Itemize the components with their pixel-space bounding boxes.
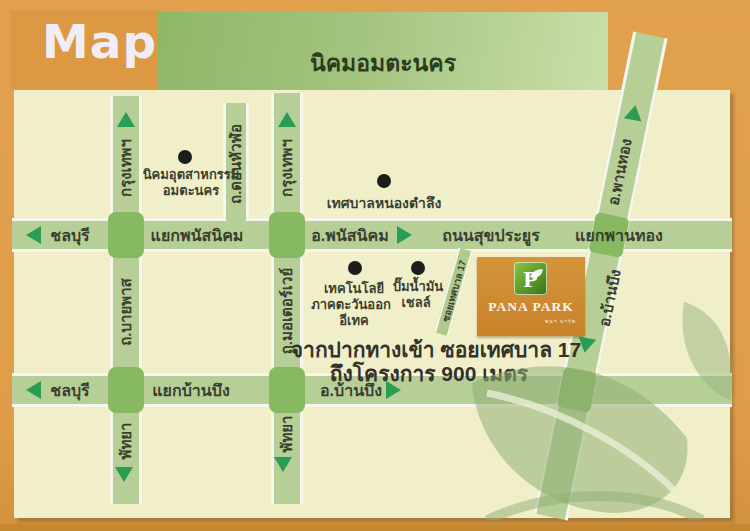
label-dir-phanatnikhom: อ.พนัสนิคม [311, 223, 389, 248]
arrow-left-icon [26, 381, 41, 399]
label-chonburi-west-1: ชลบุรี [50, 223, 89, 248]
arrow-up-icon [117, 112, 135, 127]
crossing-bypass-sukprayoon [108, 212, 144, 258]
frame-bottom-edge [0, 524, 750, 531]
arrow-right-icon [397, 226, 412, 244]
label-pattaya-1: พัทยา [114, 423, 138, 460]
label-bypass: ถ.บายพาส [114, 278, 138, 345]
arrow-down-icon [115, 467, 133, 482]
arrow-up-icon [278, 112, 296, 127]
arrow-left-icon [26, 226, 41, 244]
screenshot-root: { "header": { "map_label": "Map", "banne… [0, 0, 750, 531]
map-panel: ชลบุรี แยกพนัสนิคม อ.พนัสนิคม ถนนสุขประย… [14, 90, 730, 518]
label-junction-phanthong: แยกพานทอง [575, 223, 663, 248]
leaf-watermark [432, 288, 732, 520]
banner-text: นิคมอมตะนคร [310, 45, 456, 81]
banner-amata-nakorn: นิคมอมตะนคร [158, 12, 608, 90]
poi-dot-nong-tamlueng [377, 174, 391, 188]
poi-label: เชลล์ [401, 292, 430, 313]
label-bangkok-1: กรุงเทพฯ [114, 139, 138, 197]
crossing-motorway-sukprayoon [269, 212, 305, 258]
crossing-bypass-banbueng [108, 367, 144, 413]
label-junction-banbueng: แยกบ้านบึง [152, 378, 229, 403]
poi-label: อมตะนคร [163, 180, 219, 201]
map-title: Map [42, 14, 157, 69]
poi-dot-amata-nakorn [178, 150, 192, 164]
arrow-up-icon [624, 103, 645, 121]
poi-label: อีเทค [339, 310, 369, 331]
arrow-down-icon [274, 457, 292, 472]
poi-label: เทศบาลหนองตำลึง [327, 192, 442, 214]
label-sukprayoon-road: ถนนสุขประยูร [442, 223, 540, 248]
crossing-motorway-banbueng [269, 367, 305, 413]
label-junction-phanatnikhom: แยกพนัสนิคม [151, 223, 244, 248]
label-pattaya-2: พัทยา [275, 416, 299, 453]
label-bangkok-2: กรุงเทพฯ [275, 139, 299, 197]
poi-dot-shell [411, 261, 425, 275]
leaf-icon [529, 268, 545, 280]
label-chonburi-west-2: ชลบุรี [50, 378, 89, 403]
poi-dot-etech [348, 261, 362, 275]
